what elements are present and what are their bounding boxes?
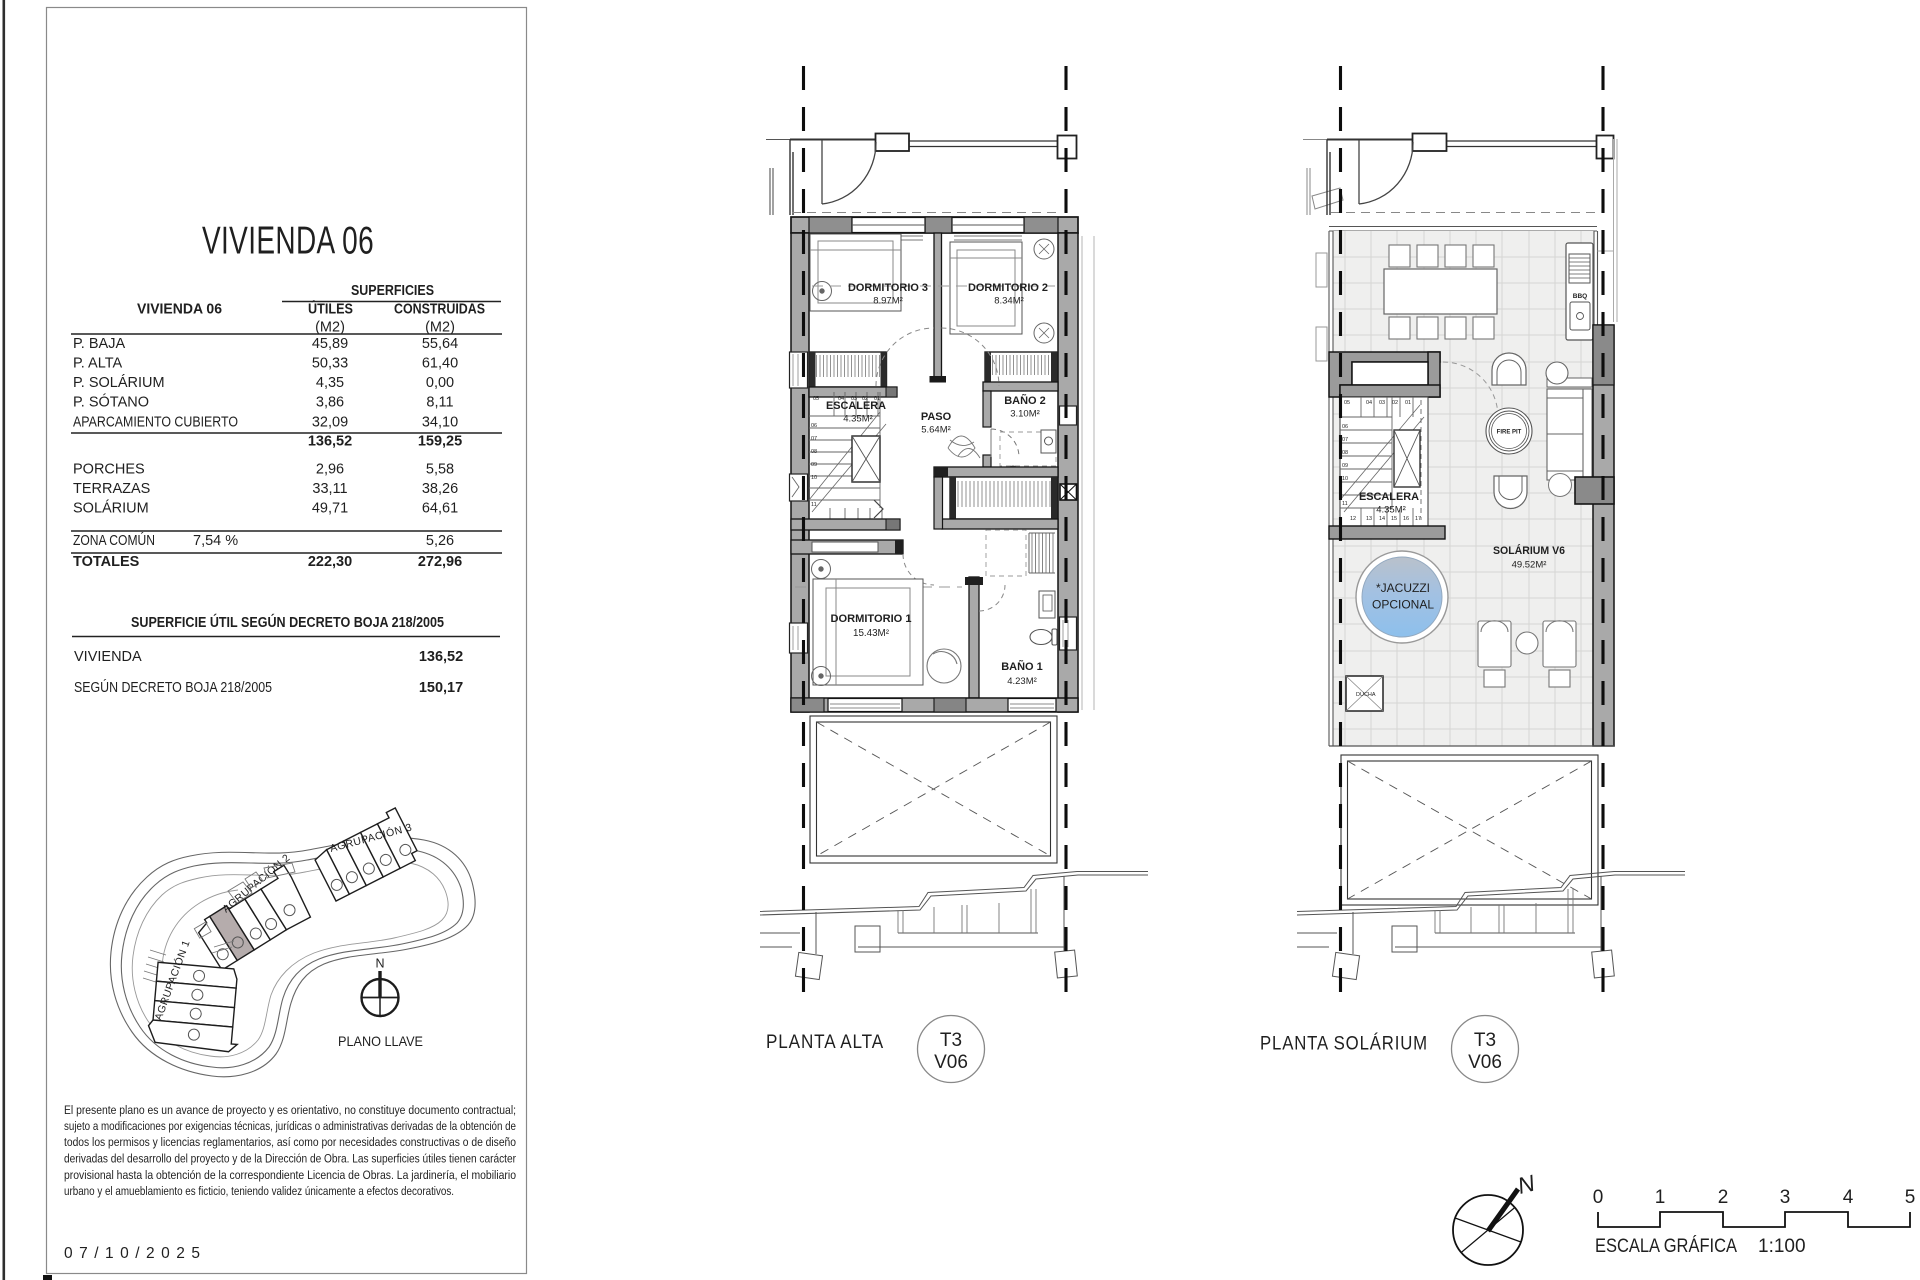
svg-text:APARCAMIENTO CUBIERTO: APARCAMIENTO CUBIERTO [73,415,238,431]
svg-text:PORCHES: PORCHES [73,462,145,478]
svg-text:PLANTA SOLÁRIUM: PLANTA SOLÁRIUM [1260,1032,1428,1055]
svg-text:05: 05 [1344,400,1350,406]
svg-text:1:100: 1:100 [1758,1236,1806,1257]
svg-text:SEGÚN DECRETO BOJA 218/2005: SEGÚN DECRETO BOJA 218/2005 [74,679,272,696]
svg-text:ÚTILES: ÚTILES [308,300,353,318]
svg-text:(M2): (M2) [425,320,455,336]
svg-text:3,86: 3,86 [316,395,344,411]
svg-text:55,64: 55,64 [422,336,458,352]
svg-text:08: 08 [811,449,817,455]
svg-text:06: 06 [1342,424,1348,430]
svg-text:50,33: 50,33 [312,356,348,372]
svg-text:TOTALES: TOTALES [73,554,140,570]
svg-text:(M2): (M2) [315,320,345,336]
svg-text:15.43M²: 15.43M² [853,628,890,639]
svg-text:FIRE PIT: FIRE PIT [1497,430,1522,436]
svg-text:32,09: 32,09 [312,415,348,431]
svg-text:5: 5 [1905,1187,1916,1208]
svg-text:159,25: 159,25 [418,434,462,450]
svg-text:BBQ: BBQ [1573,293,1587,300]
svg-text:136,52: 136,52 [308,434,352,450]
svg-text:7,54 %: 7,54 % [193,533,238,549]
svg-text:BAÑO 2: BAÑO 2 [1004,394,1046,407]
svg-text:PLANO LLAVE: PLANO LLAVE [338,1033,423,1049]
svg-text:P. BAJA: P. BAJA [73,336,125,352]
svg-text:N: N [375,957,384,971]
svg-text:CONSTRUIDAS: CONSTRUIDAS [394,302,485,318]
svg-text:02: 02 [1392,400,1398,406]
svg-text:07: 07 [1342,437,1348,443]
svg-text:15: 15 [1391,516,1397,522]
svg-text:01: 01 [1405,400,1411,406]
svg-text:2,96: 2,96 [316,462,344,478]
svg-text:8,11: 8,11 [426,395,453,411]
svg-text:5.64M²: 5.64M² [921,425,951,436]
svg-text:DORMITORIO 1: DORMITORIO 1 [831,613,912,625]
svg-text:PLANTA ALTA: PLANTA ALTA [766,1031,884,1053]
svg-text:150,17: 150,17 [419,680,463,696]
svg-text:3: 3 [1780,1187,1791,1208]
svg-text:272,96: 272,96 [418,554,462,570]
svg-text:PASO: PASO [921,411,952,423]
svg-text:03: 03 [1379,400,1385,406]
svg-text:61,40: 61,40 [422,356,458,372]
svg-text:P. SOLÁRIUM: P. SOLÁRIUM [73,374,165,391]
svg-text:DORMITORIO 2: DORMITORIO 2 [968,282,1048,294]
svg-text:8.97M²: 8.97M² [873,296,903,307]
svg-text:0: 0 [1593,1187,1604,1208]
svg-text:BAÑO 1: BAÑO 1 [1001,660,1043,673]
svg-text:P. ALTA: P. ALTA [73,356,122,372]
svg-text:T3: T3 [940,1030,962,1051]
svg-text:ESCALERA: ESCALERA [826,400,886,412]
svg-text:urbano y el amueblamiento es f: urbano y el amueblamiento es ficticio, t… [64,1184,454,1198]
svg-text:OPCIONAL: OPCIONAL [1372,598,1434,612]
svg-text:3.10M²: 3.10M² [1010,409,1040,420]
svg-text:10: 10 [811,475,817,481]
svg-text:V06: V06 [1468,1052,1502,1073]
svg-text:49.52M²: 49.52M² [1512,560,1547,571]
svg-text:38,26: 38,26 [422,481,458,497]
svg-text:33,11: 33,11 [312,481,347,497]
svg-text:ZONA COMÚN: ZONA COMÚN [73,532,155,549]
svg-text:11: 11 [811,502,817,508]
svg-text:34,10: 34,10 [422,415,458,431]
svg-text:49,71: 49,71 [312,501,348,517]
svg-text:136,52: 136,52 [419,649,463,665]
svg-text:DORMITORIO 3: DORMITORIO 3 [848,282,928,294]
svg-text:VIVIENDA 06: VIVIENDA 06 [202,220,374,263]
svg-text:P. SÓTANO: P. SÓTANO [73,394,149,411]
svg-text:TERRAZAS: TERRAZAS [73,481,150,497]
svg-text:64,61: 64,61 [422,501,458,517]
svg-text:04: 04 [1366,400,1372,406]
svg-text:VIVIENDA 06: VIVIENDA 06 [137,302,222,318]
svg-text:14: 14 [1379,516,1385,522]
svg-text:09: 09 [1342,463,1348,469]
svg-text:4: 4 [1843,1187,1854,1208]
svg-text:El presente plano es un avance: El presente plano es un avance de proyec… [64,1103,516,1117]
svg-text:05: 05 [813,396,819,402]
svg-text:06: 06 [811,423,817,429]
svg-text:10: 10 [1342,476,1348,482]
svg-text:222,30: 222,30 [308,554,352,570]
svg-text:09: 09 [811,462,817,468]
svg-text:11: 11 [1342,501,1348,507]
svg-text:12: 12 [1350,516,1356,522]
svg-text:2: 2 [1718,1187,1729,1208]
svg-text:VIVIENDA: VIVIENDA [74,649,142,665]
svg-text:todos los permisos y licencias: todos los permisos y licencias reglament… [64,1135,516,1149]
svg-text:13: 13 [1366,516,1372,522]
svg-text:16: 16 [1403,516,1409,522]
svg-text:ESCALERA: ESCALERA [1359,491,1419,503]
svg-text:DUCHA: DUCHA [1356,692,1376,698]
svg-text:17: 17 [1415,516,1421,522]
svg-text:derivadas del desarrollo del p: derivadas del desarrollo del proyecto y … [64,1152,516,1166]
svg-text:8.34M²: 8.34M² [994,296,1024,307]
svg-text:1: 1 [1655,1187,1666,1208]
svg-text:T3: T3 [1474,1030,1496,1051]
svg-text:provisional hasta la obtención: provisional hasta la obtención de la cor… [64,1168,516,1182]
svg-text:08: 08 [1342,450,1348,456]
svg-text:V06: V06 [934,1052,968,1073]
svg-text:SOLÁRIUM: SOLÁRIUM [73,500,149,517]
svg-text:45,89: 45,89 [312,336,348,352]
svg-text:SUPERFICIES: SUPERFICIES [351,283,434,299]
svg-text:SOLÁRIUM V6: SOLÁRIUM V6 [1493,544,1565,557]
svg-text:07: 07 [811,436,817,442]
svg-text:4.35M²: 4.35M² [1376,505,1406,516]
svg-text:*JACUZZI: *JACUZZI [1376,581,1430,595]
svg-text:0,00: 0,00 [426,375,454,391]
svg-text:4,35: 4,35 [316,375,344,391]
svg-text:4.35M²: 4.35M² [843,414,873,425]
svg-text:ESCALA GRÁFICA: ESCALA GRÁFICA [1595,1236,1737,1257]
svg-text:5,26: 5,26 [426,533,454,549]
svg-text:4.23M²: 4.23M² [1007,676,1037,687]
svg-text:SUPERFICIE ÚTIL SEGÚN DECRETO: SUPERFICIE ÚTIL SEGÚN DECRETO BOJA 218/2… [131,613,444,631]
svg-text:sujeto a modificaciones por ex: sujeto a modificaciones por exigencias t… [64,1119,516,1133]
svg-text:5,58: 5,58 [426,462,454,478]
